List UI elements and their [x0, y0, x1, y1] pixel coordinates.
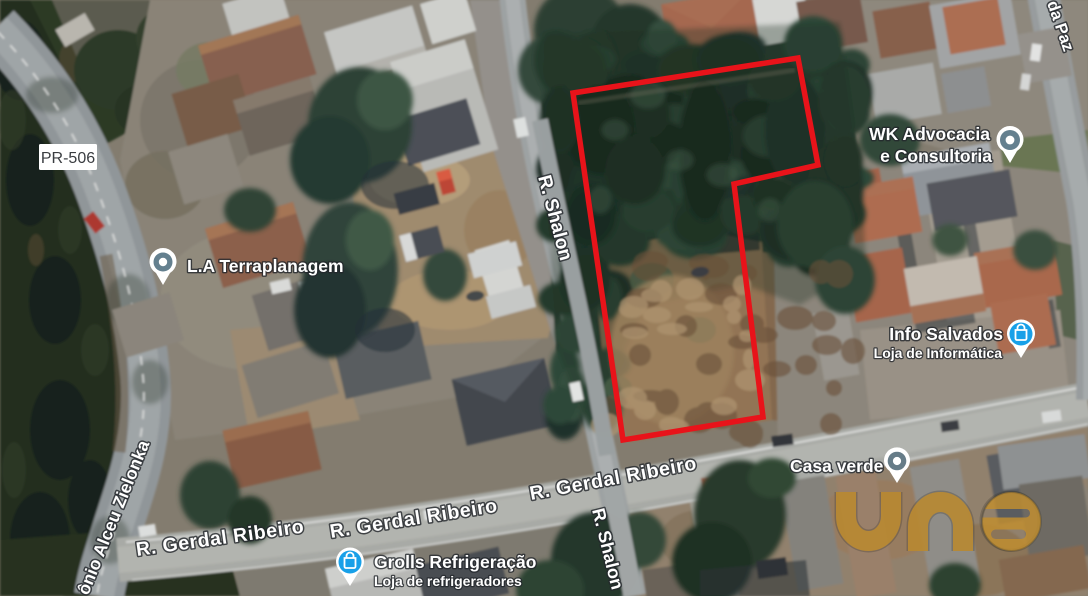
svg-text:Loja de refrigeradores: Loja de refrigeradores: [374, 573, 522, 589]
svg-text:L.A Terraplanagem: L.A Terraplanagem: [187, 256, 344, 276]
svg-text:Loja de Informática: Loja de Informática: [874, 345, 1003, 361]
svg-text:Info Salvados: Info Salvados: [889, 324, 1003, 344]
svg-text:Grolls Refrigeração: Grolls Refrigeração: [374, 552, 536, 572]
svg-text:WK Advocacia: WK Advocacia: [869, 124, 990, 144]
svg-text:PR-506: PR-506: [41, 150, 95, 167]
svg-text:e Consultoria: e Consultoria: [880, 146, 992, 166]
svg-text:Casa verde: Casa verde: [790, 456, 884, 476]
